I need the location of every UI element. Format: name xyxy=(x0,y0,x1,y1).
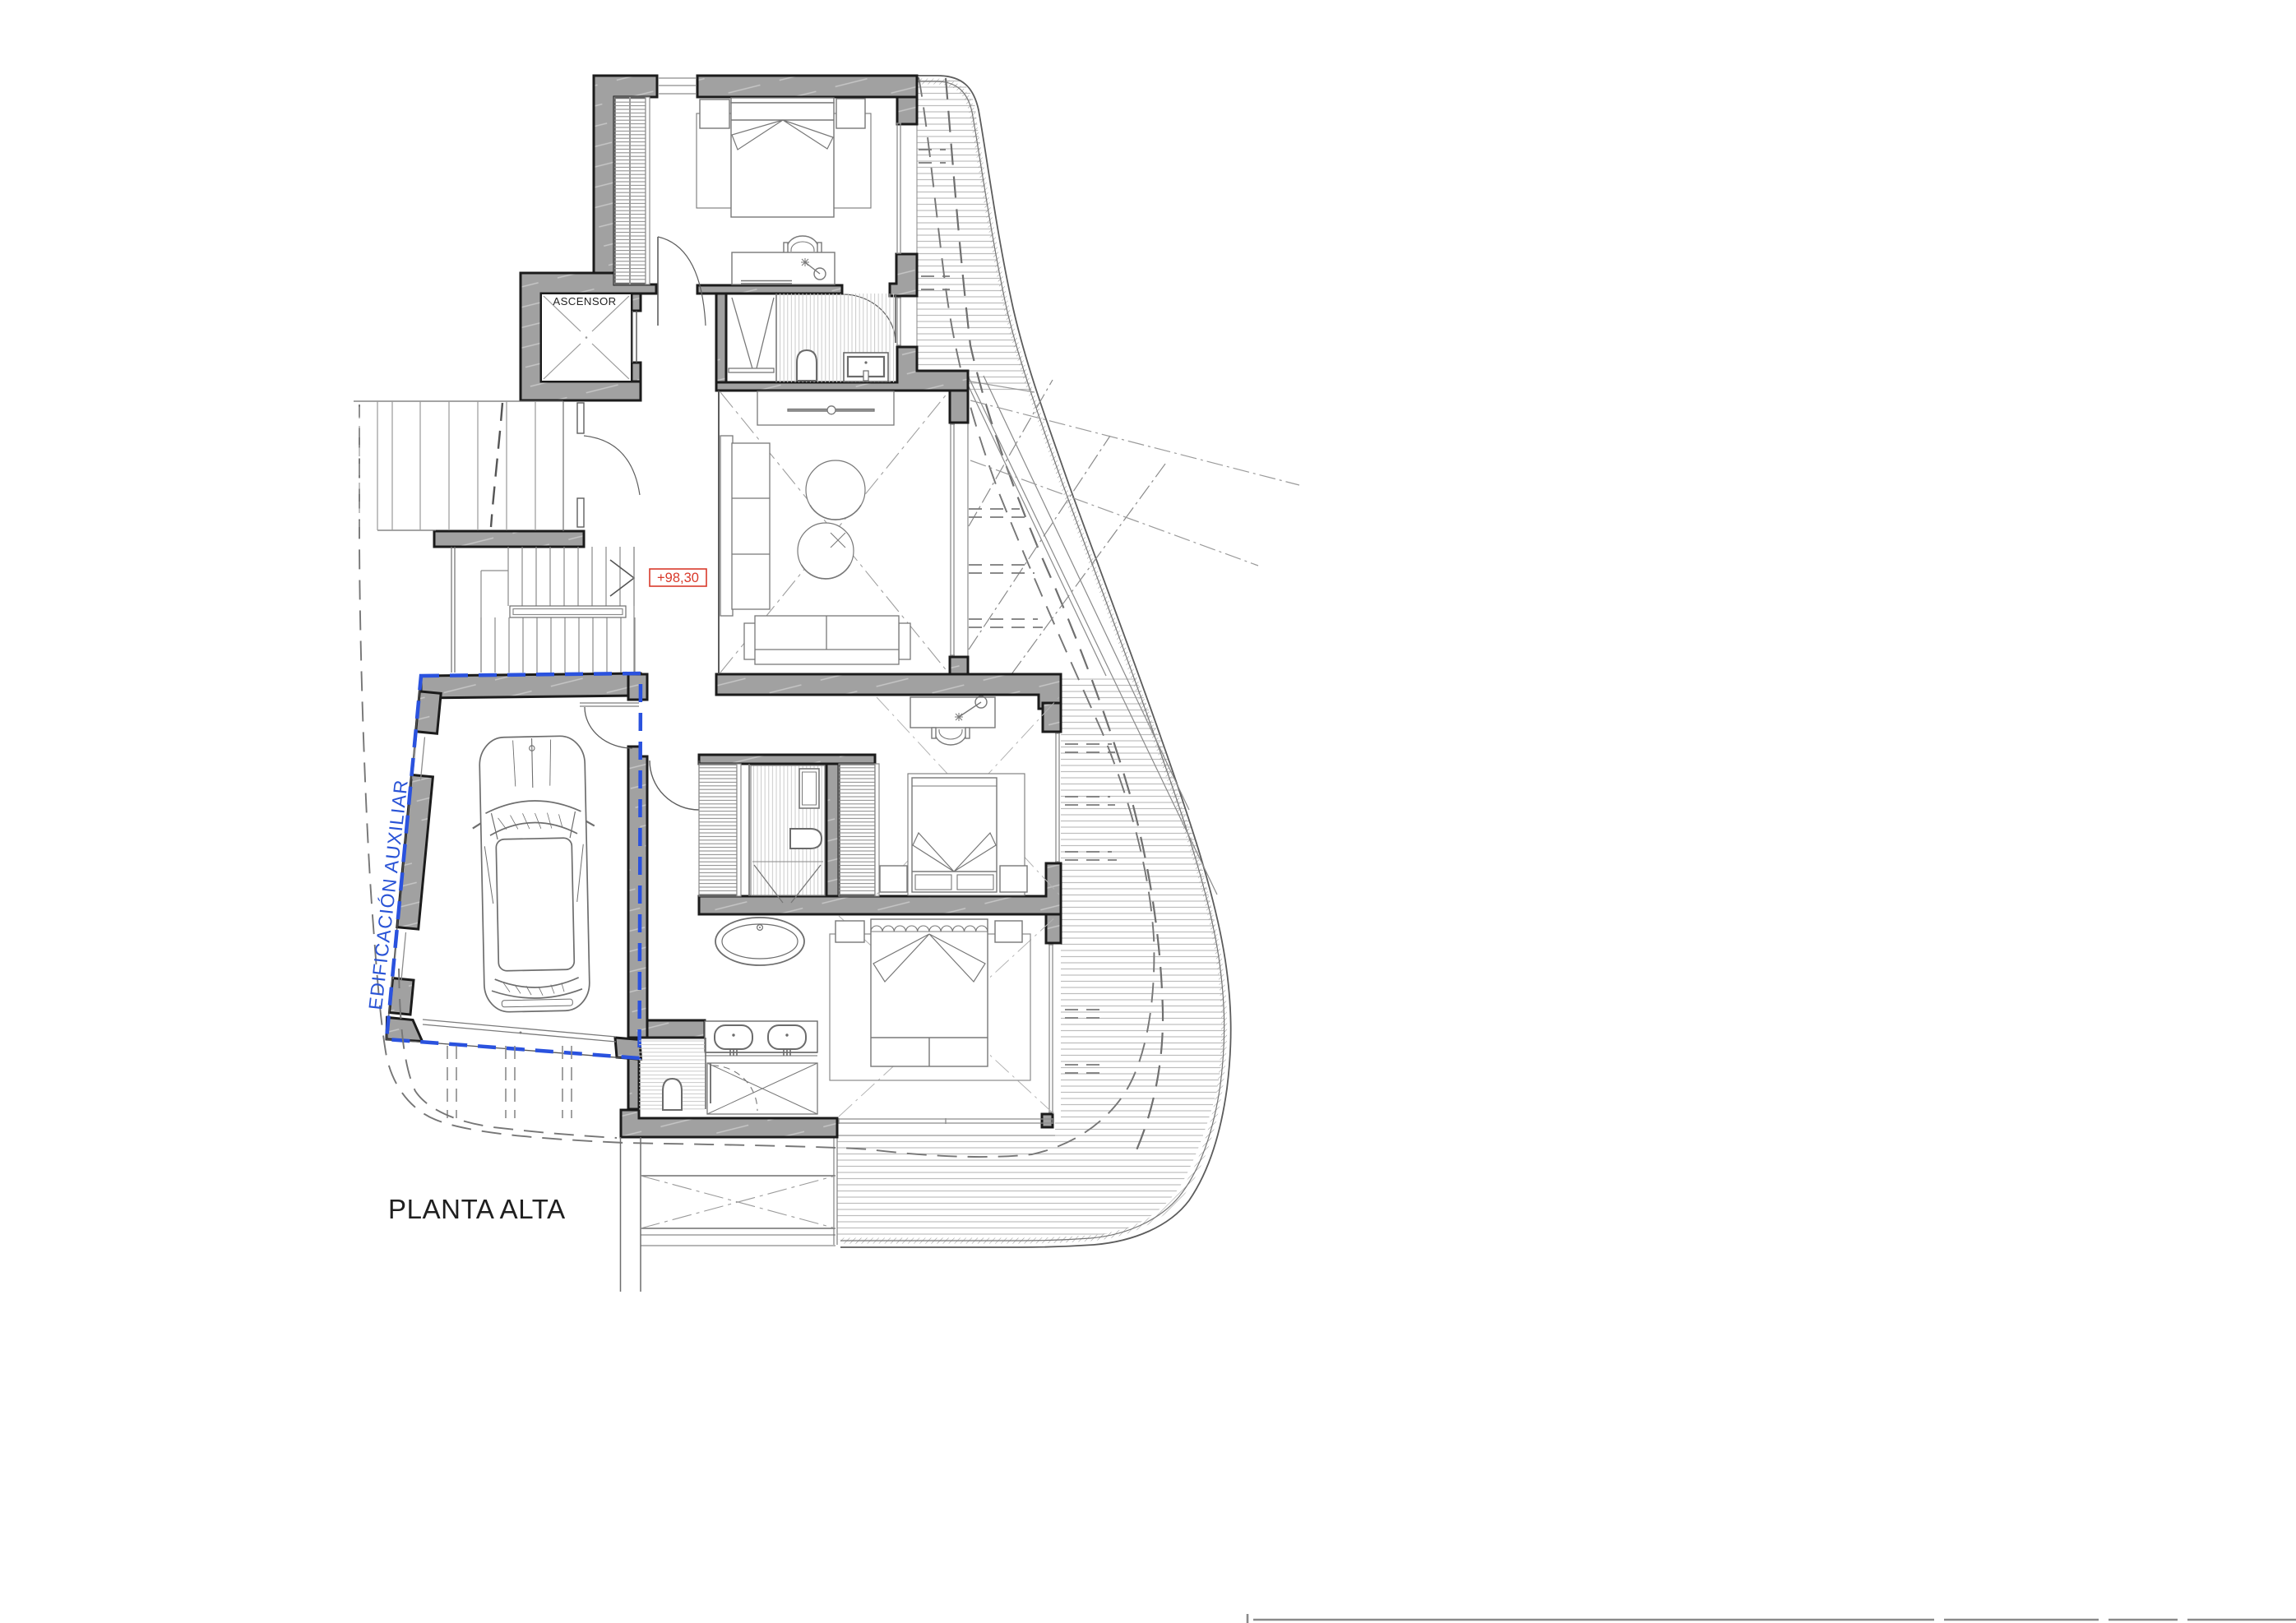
svg-text:ASCENSOR: ASCENSOR xyxy=(553,295,616,307)
svg-text:+98,30: +98,30 xyxy=(657,571,699,585)
svg-text:PLANTA ALTA: PLANTA ALTA xyxy=(388,1194,566,1224)
